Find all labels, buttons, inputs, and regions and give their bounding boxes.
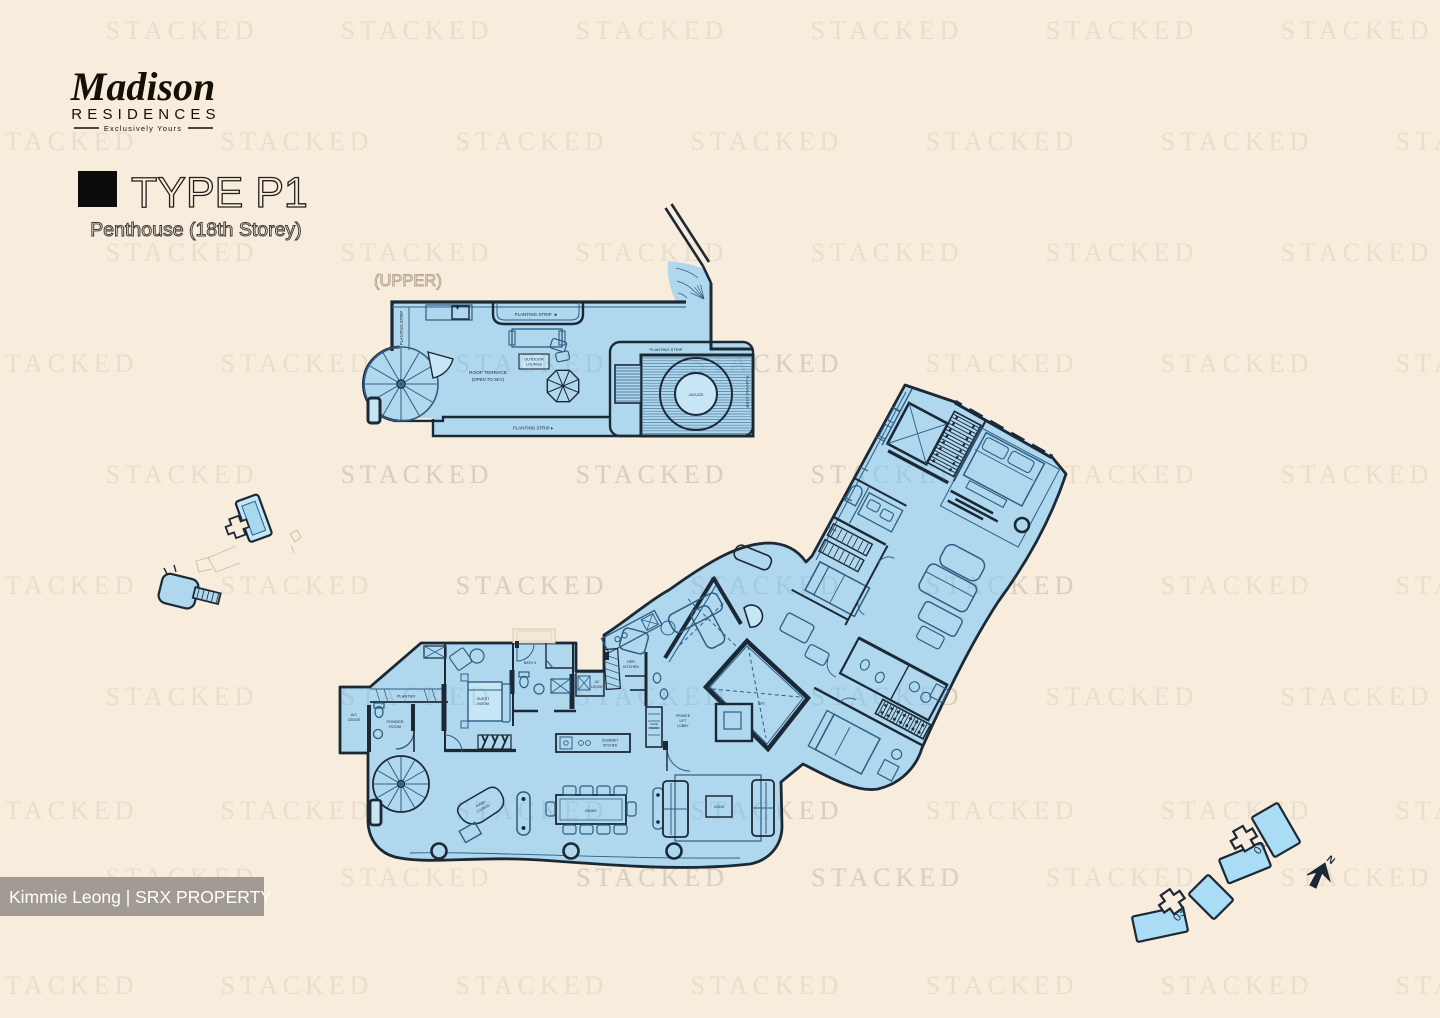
svg-text:POWDER: POWDER: [386, 720, 403, 724]
svg-text:STACKED: STACKED: [106, 682, 259, 711]
svg-text:STACKED: STACKED: [1161, 796, 1314, 825]
svg-text:STACKED: STACKED: [576, 16, 729, 45]
svg-text:KITCHEN: KITCHEN: [603, 744, 618, 748]
svg-text:LOBBY: LOBBY: [677, 724, 689, 728]
svg-text:STACKED: STACKED: [221, 971, 374, 1000]
svg-text:STACKED: STACKED: [1161, 127, 1314, 156]
svg-text:STACKED: STACKED: [1396, 796, 1440, 825]
svg-text:ROOM: ROOM: [389, 725, 401, 729]
svg-text:PLANTING STRIP ▸: PLANTING STRIP ▸: [513, 426, 554, 431]
svg-text:STACKED: STACKED: [1161, 571, 1314, 600]
svg-text:STACKED: STACKED: [576, 460, 729, 489]
svg-text:STACKED: STACKED: [1161, 349, 1314, 378]
svg-text:STACKED: STACKED: [576, 238, 729, 267]
svg-text:STACKED: STACKED: [576, 682, 729, 711]
svg-text:STACKED: STACKED: [811, 238, 964, 267]
svg-text:STACKED: STACKED: [1396, 349, 1440, 378]
svg-text:STACKED: STACKED: [1046, 863, 1199, 892]
svg-text:Penthouse (18th Storey): Penthouse (18th Storey): [90, 219, 301, 241]
svg-text:LEDGE: LEDGE: [348, 718, 361, 722]
svg-text:STACKED: STACKED: [926, 971, 1079, 1000]
svg-text:STACKED: STACKED: [1281, 16, 1434, 45]
svg-text:STACKED: STACKED: [691, 971, 844, 1000]
svg-text:STACKED: STACKED: [106, 16, 259, 45]
svg-text:STACKED: STACKED: [811, 16, 964, 45]
svg-text:STACKED: STACKED: [106, 238, 259, 267]
svg-text:STACKED: STACKED: [1396, 971, 1440, 1000]
svg-text:A/C: A/C: [351, 713, 358, 717]
svg-text:STACKED: STACKED: [1046, 16, 1199, 45]
svg-text:JACUZZI: JACUZZI: [689, 393, 704, 397]
svg-text:STACKED: STACKED: [811, 682, 964, 711]
svg-text:STACKED: STACKED: [691, 349, 844, 378]
svg-text:STACKED: STACKED: [1396, 127, 1440, 156]
svg-text:ROOM: ROOM: [650, 726, 659, 730]
svg-text:BATH 3: BATH 3: [524, 661, 536, 665]
svg-text:STACKED: STACKED: [577, 863, 730, 892]
svg-text:STACKED: STACKED: [1281, 460, 1434, 489]
svg-text:STACKED: STACKED: [341, 238, 494, 267]
svg-text:HER: HER: [627, 660, 635, 664]
svg-text:STACKED: STACKED: [691, 127, 844, 156]
svg-text:STACKED: STACKED: [1046, 460, 1199, 489]
svg-text:LIFT: LIFT: [680, 719, 687, 723]
svg-text:PLANTING STRIP: PLANTING STRIP: [650, 347, 683, 352]
svg-text:STACKED: STACKED: [456, 971, 609, 1000]
svg-text:STACKED: STACKED: [691, 796, 844, 825]
svg-text:STACKED: STACKED: [456, 349, 609, 378]
svg-text:STACKED: STACKED: [341, 460, 494, 489]
svg-text:(UPPER): (UPPER): [374, 272, 442, 290]
svg-text:STACKED: STACKED: [0, 796, 138, 825]
svg-text:STACKED: STACKED: [926, 571, 1079, 600]
svg-text:STACKED: STACKED: [221, 571, 374, 600]
svg-text:STACKED: STACKED: [0, 571, 138, 600]
svg-text:GOURMET: GOURMET: [602, 739, 618, 743]
svg-text:STACKED: STACKED: [221, 349, 374, 378]
svg-text:STACKED: STACKED: [456, 796, 609, 825]
svg-text:STACKED: STACKED: [221, 796, 374, 825]
svg-text:STACKED: STACKED: [691, 571, 844, 600]
svg-text:PLANTING STRIP: PLANTING STRIP: [399, 311, 404, 346]
svg-text:STACKED: STACKED: [1281, 863, 1434, 892]
svg-text:STACKED: STACKED: [812, 863, 965, 892]
svg-text:STACKED: STACKED: [1046, 238, 1199, 267]
svg-text:STACKED: STACKED: [926, 349, 1079, 378]
svg-text:STACKED: STACKED: [456, 127, 609, 156]
svg-text:STACKED: STACKED: [341, 682, 494, 711]
svg-text:STACKED: STACKED: [456, 571, 609, 600]
svg-text:STACKED: STACKED: [1281, 238, 1434, 267]
svg-text:RESIDENCES: RESIDENCES: [71, 106, 221, 123]
svg-text:STACKED: STACKED: [926, 127, 1079, 156]
svg-text:Madison: Madison: [70, 64, 216, 109]
svg-text:PLANTING STRIP ◄: PLANTING STRIP ◄: [515, 312, 558, 317]
svg-text:STACKED: STACKED: [341, 16, 494, 45]
svg-text:STACKED: STACKED: [0, 971, 138, 1000]
svg-text:STACKED: STACKED: [1161, 971, 1314, 1000]
svg-text:STACKED: STACKED: [221, 127, 374, 156]
svg-text:STACKED: STACKED: [1046, 682, 1199, 711]
svg-text:PRIVATE: PRIVATE: [676, 714, 691, 718]
svg-text:STACKED: STACKED: [106, 460, 259, 489]
svg-text:TYPE P1: TYPE P1: [131, 169, 308, 217]
svg-text:STACKED: STACKED: [926, 796, 1079, 825]
svg-text:KITCHEN: KITCHEN: [623, 665, 639, 669]
svg-text:STACKED: STACKED: [0, 349, 138, 378]
svg-text:Exclusively Yours: Exclusively Yours: [104, 124, 182, 133]
svg-text:Kimmie Leong | SRX PROPERTY: Kimmie Leong | SRX PROPERTY: [9, 887, 272, 907]
svg-text:STACKED: STACKED: [341, 863, 494, 892]
svg-text:STACKED: STACKED: [811, 460, 964, 489]
svg-text:STACKED: STACKED: [1396, 571, 1440, 600]
svg-text:STACKED: STACKED: [1281, 682, 1434, 711]
